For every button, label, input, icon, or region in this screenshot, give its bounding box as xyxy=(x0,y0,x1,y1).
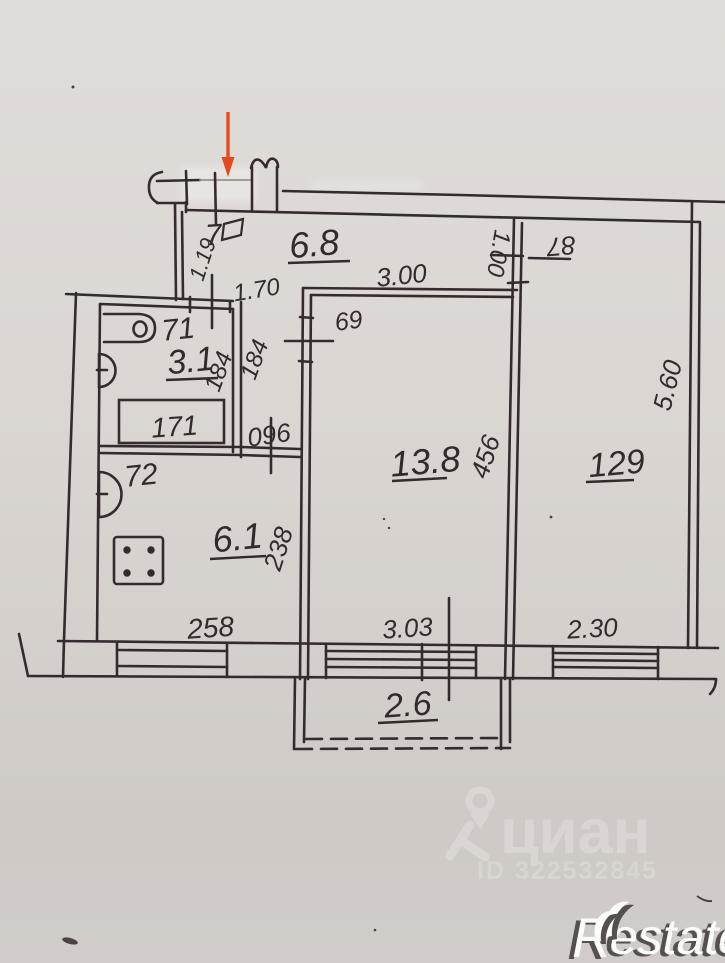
svg-text:3.03: 3.03 xyxy=(381,611,434,644)
svg-text:171: 171 xyxy=(150,409,199,443)
svg-text:87: 87 xyxy=(544,230,577,263)
svg-text:13.8: 13.8 xyxy=(389,438,462,485)
svg-text:estate: estate xyxy=(610,909,725,963)
svg-text:6.8: 6.8 xyxy=(287,221,340,266)
svg-text:69: 69 xyxy=(334,304,366,336)
svg-text:ID 322532845: ID 322532845 xyxy=(477,857,658,885)
svg-text:129: 129 xyxy=(587,442,647,485)
svg-text:2.30: 2.30 xyxy=(565,612,619,645)
svg-text:72: 72 xyxy=(123,458,160,494)
svg-text:096: 096 xyxy=(245,417,293,453)
svg-text:3.00: 3.00 xyxy=(375,258,429,293)
svg-text:6.1: 6.1 xyxy=(210,514,264,560)
svg-text:258: 258 xyxy=(185,611,235,645)
